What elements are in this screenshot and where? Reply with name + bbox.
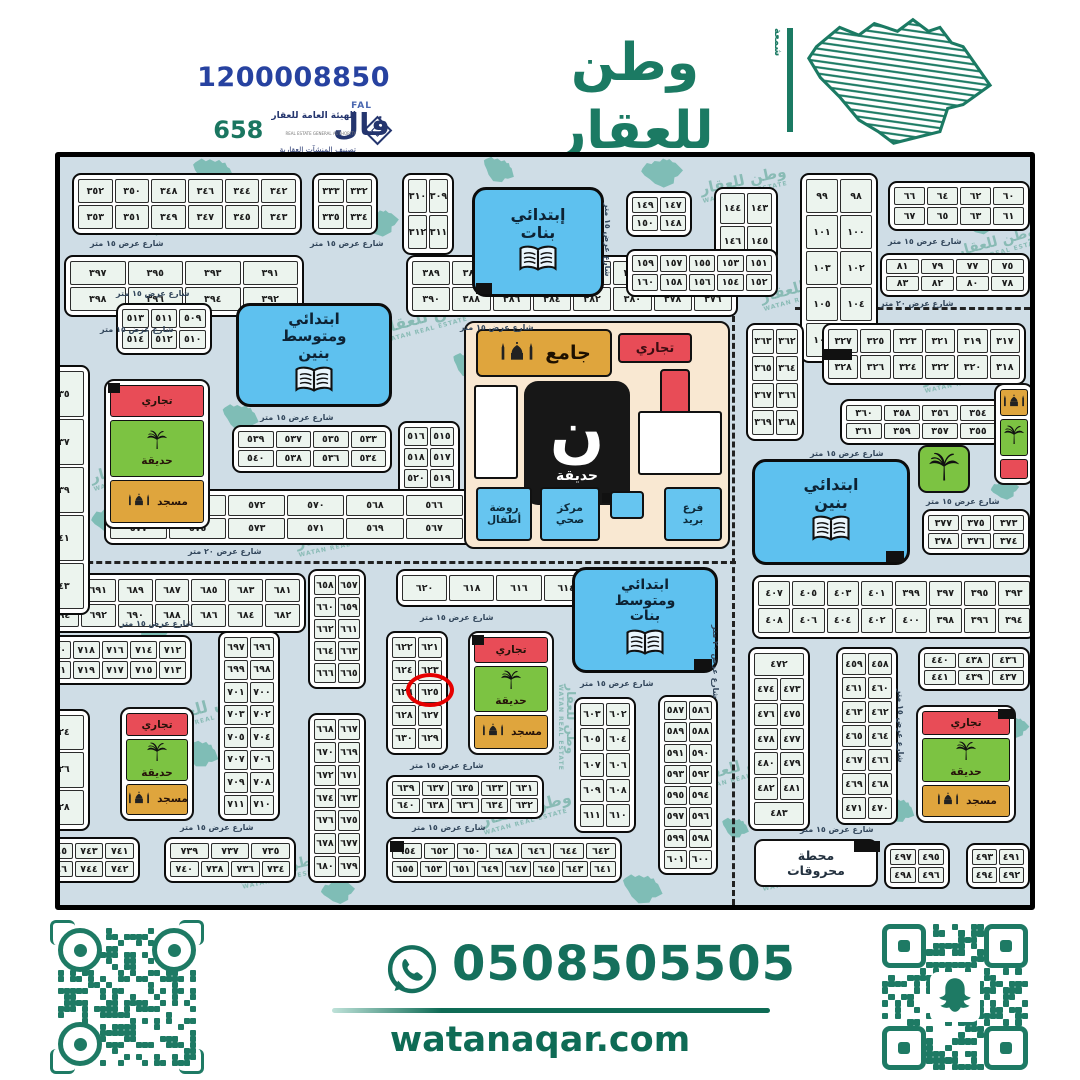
map-watermark-shape	[477, 152, 520, 188]
fuel-station-label: محطة محروقات	[787, 848, 845, 878]
plot-cell: ٨٢	[921, 276, 954, 291]
plot-cell: ٤٦٣	[842, 701, 866, 723]
plot-cell: ٤٧٩	[780, 752, 804, 775]
plot-cell: ٤٦٨	[868, 773, 892, 795]
mosque-icon	[497, 340, 537, 366]
plot-cell: ٦٥٥	[392, 861, 418, 877]
plot-cell: ٦٧٦	[314, 810, 336, 831]
plot-cell: ٥٩١	[664, 744, 687, 763]
plot-cell: ٤٧٢	[754, 653, 804, 676]
plot-cell: ٦٨٧	[155, 579, 190, 602]
street-width-label: شارع عرض ١٥ متر	[90, 239, 163, 248]
plot-cell: ١٤٤	[720, 193, 745, 224]
plot-cell: ٥٩٣	[664, 765, 687, 784]
plot-cell: ٣٣٢	[346, 179, 372, 203]
school-block: ابتدائي ومتوسط بنات	[572, 567, 718, 673]
plot-cell: ٤٠٦	[792, 608, 824, 633]
plot-cell: ٣١٢	[408, 215, 427, 249]
plot-cell: ٧٤٦	[55, 861, 73, 877]
plot-cell: ٤٩٥	[918, 849, 944, 865]
street-width-label: شارع عرض ١٥ متر	[810, 449, 883, 458]
plot-cell: ٦٧٠	[314, 742, 336, 763]
plot-cell: ٥٧٣	[228, 518, 285, 539]
plot-cell: ٤٨٣	[754, 802, 804, 825]
plot-cell: ٣٢٤	[893, 355, 923, 379]
footer-divider	[332, 1008, 770, 1013]
plot-cell: ٣٣٥	[318, 205, 344, 229]
plot-cell: ٧١٩	[73, 661, 100, 679]
plot-cell: ٦٥٢	[424, 843, 454, 859]
plot-cell: ٧٠٩	[224, 772, 248, 793]
plot-cell: ٨٣	[886, 276, 919, 291]
street-width-label: شارع عرض ١٥ متر	[116, 289, 189, 298]
plot-cell: ٣٢٥	[860, 329, 890, 353]
plot-cell: ٤٦٤	[868, 725, 892, 747]
plot-cell: ١٠٣	[806, 251, 838, 285]
plot-cell: ٦٠٤	[606, 728, 630, 751]
plot-cell: ٦٢٢	[392, 637, 416, 658]
header: 1200008850FALفال 658 الهيئة العامة للعقا…	[0, 0, 1080, 150]
grand-mosque-label: جامع	[545, 342, 591, 364]
plot-block: ٧٤٥٧٤٣٧٤١٧٤٦٧٤٤٧٤٢	[55, 837, 140, 883]
plot-cell: ٧١٥	[130, 661, 157, 679]
plot-cell: ٥١٠	[179, 330, 206, 349]
plot-cell: ٤٠٧	[758, 581, 790, 606]
plot-cell: ٤٠٥	[792, 581, 824, 606]
plot-cell: ٤٩٤	[972, 867, 997, 883]
plot-cell: ٧٠٢	[250, 705, 274, 726]
phone-number: 0508505505	[452, 936, 796, 992]
open-book-icon	[293, 365, 335, 399]
plot-cell: ٤٩٧	[890, 849, 916, 865]
plot-cell: ٤٨٠	[754, 752, 778, 775]
plot-cell: ٣٤٦	[188, 179, 223, 203]
plot-cell: ٣٩٥	[128, 261, 184, 285]
commercial-strip	[1000, 459, 1028, 479]
block-corner-marker	[822, 349, 852, 360]
plot-cell: ٦٣٥	[451, 781, 479, 796]
plot-cell: ٥٨٧	[664, 701, 687, 720]
plot-cell: ٣١٩	[957, 329, 987, 353]
block-corner-marker	[390, 841, 404, 852]
facility-label: روضة أطفال	[487, 502, 521, 526]
plot-cell: ٦٠٣	[580, 703, 604, 726]
plot-cell: ٦٦٧	[338, 719, 360, 740]
brand-divider-bar	[787, 28, 793, 132]
street-width-label: شارع عرض ١٥ متر	[410, 761, 483, 770]
website-url: watanaqar.com	[0, 1020, 1080, 1060]
plot-cell: ٦٨١	[265, 579, 300, 602]
plot-cell: ٧٠٧	[224, 750, 248, 771]
plot-cell: ٦٠٩	[580, 779, 604, 802]
plot-cell: ٦٥٨	[314, 575, 336, 595]
plot-cell: ٤٧٣	[780, 678, 804, 701]
plot-cell: ٣٥٧	[922, 423, 958, 439]
plot-cell: ٣١١	[429, 215, 448, 249]
fal-license-number: 1200008850	[197, 62, 390, 93]
plot-block: ١٤٩١٤٧١٥٠١٤٨	[626, 191, 692, 237]
open-book-icon	[810, 514, 852, 548]
plot-cell: ١٥٢	[746, 274, 772, 291]
plot-cell: ٦٨٩	[118, 579, 153, 602]
commercial-block: تجاري	[618, 333, 692, 363]
plot-cell: ١٥٦	[689, 274, 715, 291]
plot-cell: ٧٤٠	[170, 861, 199, 877]
open-book-icon	[624, 628, 666, 662]
street-width-label: شارع عرض ١٥ متر	[800, 825, 873, 834]
school-label: ابتدائي بنين	[804, 476, 859, 512]
block-corner-marker	[886, 551, 904, 562]
plot-cell: ٣٧٤	[993, 533, 1024, 549]
plot-cell: ٦٥٧	[338, 575, 360, 595]
plot-cell: ٦٩٦	[250, 637, 274, 658]
plot-cell: ٧٠٥	[224, 727, 248, 748]
noon-letter: ن	[550, 402, 605, 466]
plot-cell: ٣٧٥	[961, 515, 992, 531]
plot-block: ٦٩٧٦٩٦٦٩٩٦٩٨٧٠١٧٠٠٧٠٣٧٠٢٧٠٥٧٠٤٧٠٧٧٠٦٧٠٩٧…	[218, 631, 280, 821]
street-width-label: شارع عرض ١٥ متر	[260, 413, 333, 422]
plot-block: ٣٦٠٣٥٨٣٥٦٣٥٤٣٦١٣٥٩٣٥٧٣٥٥	[840, 399, 1002, 445]
plot-cell: ٦٩٩	[224, 660, 248, 681]
facility-label: مركز صحي	[556, 502, 584, 526]
plot-cell: ٥٩٨	[689, 829, 712, 848]
plot-cell: ٣١٠	[408, 179, 427, 213]
plot-cell: ٦٠٧	[580, 753, 604, 776]
plot-cell: ٦٥٠	[457, 843, 487, 859]
highlighted-plot-circle	[406, 673, 454, 707]
facility-block: فرع بريد	[664, 487, 722, 541]
street-width-label: شارع عرض ١٥ متر	[180, 823, 253, 832]
plot-cell: ٦٣٠	[392, 728, 416, 749]
snapchat-ghost-icon	[930, 972, 980, 1022]
plot-cell: ٣١٨	[990, 355, 1020, 379]
block-corner-marker	[998, 709, 1014, 719]
plot-cell: ٤٧١	[842, 797, 866, 819]
plot-cell: ١٠٤	[840, 287, 872, 321]
plot-cell: ٧٧	[956, 259, 989, 274]
saudi-map-logo-icon	[795, 12, 1000, 151]
school-block: ابتدائي بنين	[752, 459, 910, 565]
compound-parcel	[638, 411, 722, 475]
plot-cell: ٦١١	[580, 804, 604, 827]
park-label: حديقة	[556, 468, 598, 484]
street-width-label: شارع عرض ١٥ متر	[580, 679, 653, 688]
plot-cell: ٦٣٧	[422, 781, 450, 796]
plot-cell: ٤٣٩	[958, 670, 990, 685]
plot-cell: ٦٨٣	[228, 579, 263, 602]
plot-cell: ٣٤٥	[225, 205, 260, 229]
plot-cell: ٣٥٤	[960, 405, 996, 421]
plot-cell: ٣٠٩	[429, 179, 448, 213]
palm-tree-icon	[929, 452, 959, 486]
plot-cell: ٦٧٧	[338, 833, 360, 854]
plot-cell: ٦٠٨	[606, 779, 630, 802]
palm-tree-icon	[147, 430, 167, 454]
plot-cell: ٦٣٢	[510, 798, 538, 813]
plot-cell: ٤٧٨	[754, 728, 778, 751]
palm-tree-icon	[1004, 425, 1024, 449]
plot-cell: ٣٥٠	[115, 179, 150, 203]
plot-block: ٣٥٢٣٥٠٣٤٨٣٤٦٣٤٤٣٤٢٣٥٣٣٥١٣٤٩٣٤٧٣٤٥٣٤٣	[72, 173, 302, 235]
plot-cell: ٦٤٢	[586, 843, 616, 859]
plot-cell: ٧٤٥	[55, 843, 73, 859]
plot-cell: ٤٠٣	[827, 581, 859, 606]
plot-cell: ٤٩١	[999, 849, 1024, 865]
plot-cell: ٦٦٥	[338, 663, 360, 683]
facility-label: فرع بريد	[683, 502, 704, 526]
plot-cell: ٥٩٠	[689, 744, 712, 763]
plot-cell: ١٤٧	[660, 197, 686, 213]
plot-cell: ١٥١	[746, 255, 772, 272]
plot-cell: ٤٣٩	[55, 467, 84, 513]
plot-cell: ٣٩٠	[412, 287, 450, 311]
plot-cell: ٧٤١	[105, 843, 134, 859]
plot-cell: ٥٩٤	[689, 786, 712, 805]
mosque-icon	[935, 791, 961, 810]
palm-tree-icon	[501, 670, 521, 694]
plot-cell: ٤٨١	[780, 777, 804, 800]
plot-cell: ٦٢٩	[418, 728, 442, 749]
plot-cell: ٥٨٦	[689, 701, 712, 720]
plot-block: ٤٥٩٤٥٨٤٦١٤٦٠٤٦٣٤٦٢٤٦٥٤٦٤٤٦٧٤٦٦٤٦٩٤٦٨٤٧١٤…	[836, 647, 898, 825]
plot-cell: ١٥٥	[689, 255, 715, 272]
plot-cell: ١٤٣	[747, 193, 772, 224]
plot-cell: ٦٤٣	[562, 861, 588, 877]
plot-cell: ٣٢٣	[893, 329, 923, 353]
plot-cell: ٦٦٦	[314, 663, 336, 683]
plot-block: ٤٩٧٤٩٥٤٩٨٤٩٦	[884, 843, 950, 889]
plot-cell: ٤٧٤	[754, 678, 778, 701]
mosque-icon	[1001, 393, 1027, 412]
plot-cell: ١٠٠	[840, 215, 872, 249]
mosque-icon	[126, 790, 152, 809]
plot-block: ٦٥٤٦٥٢٦٥٠٦٤٨٦٤٦٦٤٤٦٤٢٦٥٥٦٥٣٦٥١٦٤٩٦٤٧٦٤٥٦…	[386, 837, 622, 883]
plot-cell: ٣٩٧	[70, 261, 126, 285]
facility-block: مركز صحي	[540, 487, 600, 541]
plot-cell: ٦٠	[993, 187, 1024, 205]
map-watermark-shape	[718, 814, 752, 841]
mixed-use-stack: تجاريحديقةمسجد	[104, 379, 210, 529]
plot-cell: ٥٣٤	[351, 450, 387, 467]
plot-cell: ٤٣٧	[55, 419, 84, 465]
block-corner-marker	[108, 383, 120, 393]
plot-cell: ٧٣٩	[170, 843, 209, 859]
subdivision-map: وطن للعقارWATAN REAL ESTATEوطن للعقارWAT…	[55, 152, 1035, 910]
garden-strip: حديقة	[126, 739, 188, 781]
plot-cell: ٤٤١	[55, 515, 84, 561]
plot-cell: ١٠٢	[840, 251, 872, 285]
plot-cell: ٦٧٥	[338, 810, 360, 831]
street-width-label: شارع عرض ١٥ متر	[120, 619, 193, 628]
street-width-label: شارع عرض ١٥ متر	[100, 325, 173, 334]
plot-cell: ٤٧٠	[868, 797, 892, 819]
street-width-label: شارع عرض ١٥ متر	[926, 497, 999, 506]
plot-cell: ٣٦٢	[776, 329, 798, 354]
mosque-icon	[126, 492, 152, 511]
plot-cell: ٣٧٧	[928, 515, 959, 531]
brand-side-text: شمعة	[772, 28, 783, 132]
plot-cell: ٦٧٤	[314, 788, 336, 809]
plot-cell: ٦٨٤	[228, 604, 263, 627]
plot-cell: ٧٣٧	[211, 843, 250, 859]
plot-cell: ٣٩٨	[929, 608, 961, 633]
plot-cell: ٦٦١	[338, 619, 360, 639]
plot-cell: ٣٧٨	[928, 533, 959, 549]
plot-cell: ٣٢٠	[957, 355, 987, 379]
plot-cell: ٧٠٤	[250, 727, 274, 748]
street-width-label: شارع عرض ١٥ متر	[310, 239, 383, 248]
plot-block: ٣٦٣٣٦٢٣٦٥٣٦٤٣٦٧٣٦٦٣٦٩٣٦٨	[746, 323, 804, 441]
rega-emblem-icon	[364, 117, 390, 143]
main-street-dashed-line	[60, 561, 736, 564]
plot-cell: ٣٤٣	[261, 205, 296, 229]
plot-cell: ٣٩٥	[964, 581, 996, 606]
plot-cell: ٣٥٦	[922, 405, 958, 421]
plot-cell: ٤٩٣	[972, 849, 997, 865]
commercial-strip: تجاري	[126, 713, 188, 736]
plot-cell: ٨٠	[956, 276, 989, 291]
plot-cell: ٧٠١	[224, 682, 248, 703]
plot-cell: ٣٦٤	[776, 356, 798, 381]
plot-cell: ٤٩٢	[999, 867, 1024, 883]
plot-cell: ٥١٧	[430, 448, 454, 467]
plot-block: ٦٦٨٦٦٧٦٧٠٦٦٩٦٧٢٦٧١٦٧٤٦٧٣٦٧٦٦٧٥٦٧٨٦٧٧٦٨٠٦…	[308, 713, 366, 883]
plot-cell: ٥٣٨	[276, 450, 312, 467]
plot-block: ٨١٧٩٧٧٧٥٨٣٨٢٨٠٧٨	[880, 253, 1030, 297]
plot-cell: ٣٤٨	[151, 179, 186, 203]
garden-strip: حديقة	[474, 666, 548, 712]
plot-block: ٣٧٧٣٧٥٣٧٣٣٧٨٣٧٦٣٧٤	[922, 509, 1030, 555]
plot-cell: ٧٥	[991, 259, 1024, 274]
plot-block: ٧٢٠٧١٨٧١٦٧١٤٧١٢٧٢١٧١٩٧١٧٧١٥٧١٣	[55, 635, 192, 685]
plot-cell: ٥٦٧	[406, 518, 463, 539]
plot-cell: ٣٩٣	[185, 261, 241, 285]
plot-cell: ٦٧٢	[314, 765, 336, 786]
plot-cell: ٥٩٩	[664, 829, 687, 848]
plot-cell: ٣٩٧	[929, 581, 961, 606]
plot-cell: ٥٨٩	[664, 722, 687, 741]
plot-cell: ٧٣٤	[262, 861, 291, 877]
plot-block: ٣٢٧٣٢٥٣٢٣٣٢١٣١٩٣١٧٣٢٨٣٢٦٣٢٤٣٢٢٣٢٠٣١٨	[822, 323, 1026, 385]
block-corner-marker	[602, 493, 612, 503]
plot-cell: ٦٢٨	[392, 705, 416, 726]
block-corner-marker	[472, 635, 484, 645]
plot-cell: ٥٦٩	[346, 518, 403, 539]
plot-cell: ٣٦٧	[752, 383, 774, 408]
plot-cell: ٣١٧	[990, 329, 1020, 353]
plot-cell: ٣٥١	[115, 205, 150, 229]
plot-cell: ٤٣٨	[958, 653, 990, 668]
plot-cell: ٤٧٧	[780, 728, 804, 751]
school-label: إبتدائي بنات	[511, 206, 566, 242]
brand-side-mark: شمعة	[772, 28, 793, 132]
rega-number: 658	[213, 116, 263, 144]
plot-cell: ٥٦٦	[406, 495, 463, 516]
street-width-label: شارع عرض ١٥ متر	[896, 689, 905, 762]
plot-cell: ٦٦٤	[314, 641, 336, 661]
plot-cell: ٣٦٥	[752, 356, 774, 381]
mixed-use-stack	[994, 383, 1034, 485]
plot-block: ٦٦٦٤٦٢٦٠٦٧٦٥٦٣٦١	[888, 181, 1030, 231]
plot-cell: ٣٩٤	[998, 608, 1030, 633]
plot-cell: ٧١٠	[250, 795, 274, 816]
plot-cell: ٦٤٥	[533, 861, 559, 877]
plot-cell: ٦٣٤	[481, 798, 509, 813]
facility-block	[610, 491, 644, 519]
block-corner-marker	[854, 841, 880, 852]
garden-strip	[1000, 419, 1028, 455]
school-block: إبتدائي بنات	[472, 187, 604, 297]
plot-cell: ٦٨٠	[314, 856, 336, 877]
plot-cell: ٤٠٨	[758, 608, 790, 633]
compound-parcel	[474, 385, 518, 479]
plot-block: ١٥٩١٥٧١٥٥١٥٣١٥١١٦٠١٥٨١٥٦١٥٤١٥٢	[626, 249, 778, 297]
plot-cell: ٣٦٣	[752, 329, 774, 354]
plot-cell: ٥١٥	[430, 427, 454, 446]
plot-cell: ٤٤١	[924, 670, 956, 685]
plot-block: ٥٣٩٥٣٧٥٣٥٥٣٣٥٤٠٥٣٨٥٣٦٥٣٤	[232, 425, 392, 473]
plot-cell: ١٥٣	[717, 255, 743, 272]
street-width-label: شارع عرض ١٥ متر	[412, 823, 485, 832]
plot-cell: ٧٢٦	[55, 752, 84, 787]
plot-cell: ٦٥٣	[420, 861, 446, 877]
rega-name-ar: الهيئة العامة للعقار	[271, 111, 356, 121]
plot-cell: ٣٢٢	[925, 355, 955, 379]
plot-cell: ٧١٨	[73, 641, 100, 659]
mixed-use-stack: تجاريحديقةمسجد	[468, 631, 554, 755]
plot-cell: ٤٤٣	[55, 563, 84, 609]
plot-cell: ٤٠٤	[827, 608, 859, 633]
plot-cell: ٥٣٣	[351, 431, 387, 448]
plot-cell: ٣٦٠	[846, 405, 882, 421]
plot-cell: ٣٣٤	[346, 205, 372, 229]
street-width-label: شارع عرض ١٥ متر	[460, 323, 533, 332]
plot-cell: ٤٣٦	[992, 653, 1024, 668]
street-width-label: شارع عرض ٢٠ متر	[880, 299, 953, 308]
plot-cell: ٦٠١	[664, 850, 687, 869]
plot-cell: ٤٣٧	[992, 670, 1024, 685]
map-watermark-shape	[638, 153, 687, 192]
plot-cell: ٦٤٩	[477, 861, 503, 877]
plot-cell: ١٤٩	[632, 197, 658, 213]
mosque-strip	[1000, 389, 1028, 416]
plot-cell: ٤٦٧	[842, 749, 866, 771]
plot-cell: ٣٤٤	[225, 179, 260, 203]
plot-cell: ٦١٦	[496, 575, 541, 601]
plot-cell: ٦١٠	[606, 804, 630, 827]
plot-cell: ٧٤٢	[105, 861, 134, 877]
plot-cell: ٦٥٩	[338, 597, 360, 617]
rega-text: الهيئة العامة للعقار REAL ESTATE GENERAL…	[271, 105, 356, 155]
plot-cell: ٥٩٦	[689, 807, 712, 826]
plot-cell: ٦١٨	[449, 575, 494, 601]
plot-cell: ١٥٤	[717, 274, 743, 291]
plot-cell: ١٥٠	[632, 215, 658, 231]
mixed-use-stack: تجاريحديقةمسجد	[120, 707, 194, 821]
plot-block: ٤٧٢٤٧٤٤٧٣٤٧٦٤٧٥٤٧٨٤٧٧٤٨٠٤٧٩٤٨٢٤٨١٤٨٣	[748, 647, 810, 831]
plot-cell: ٦٢٧	[418, 705, 442, 726]
garden-strip: حديقة	[110, 420, 204, 478]
map-watermark-shape	[618, 869, 667, 908]
plot-cell: ٤٥٨	[868, 653, 892, 675]
plot-cell: ٧٢١	[55, 661, 71, 679]
plot-cell: ٣٥٨	[884, 405, 920, 421]
plot-cell: ٤٦٥	[842, 725, 866, 747]
rega-name-en: REAL ESTATE GENERAL AUTHORITY	[285, 131, 356, 136]
block-corner-marker	[694, 659, 712, 670]
real-estate-map-poster: 1200008850FALفال 658 الهيئة العامة للعقا…	[0, 0, 1080, 1080]
school-label: ابتدائي ومتوسط بنين	[282, 311, 347, 361]
